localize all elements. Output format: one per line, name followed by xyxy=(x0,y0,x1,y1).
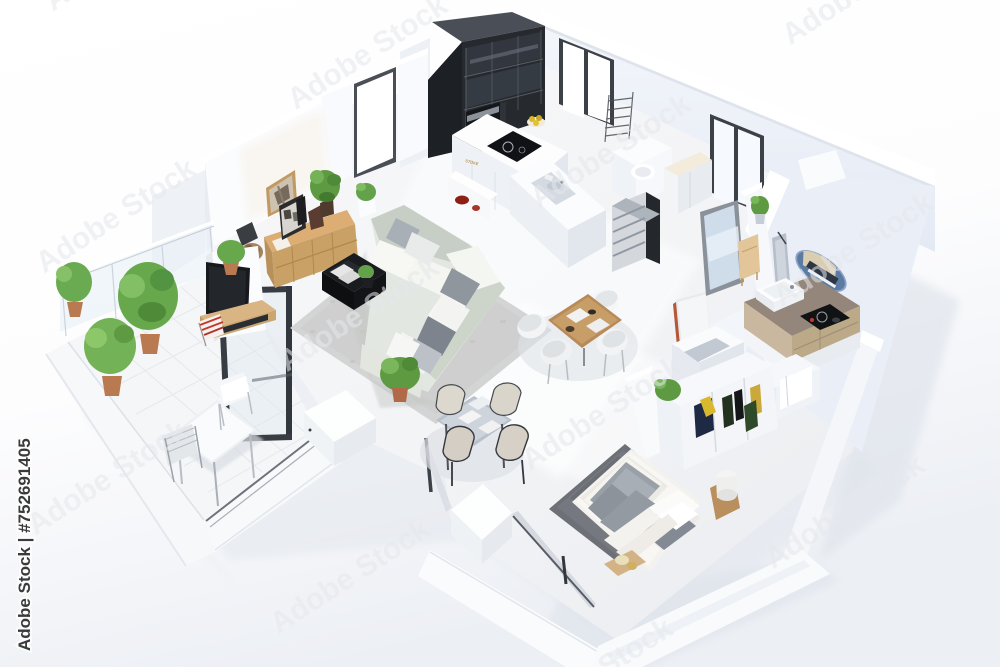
svg-text:Adobe Stock | #752691405: Adobe Stock | #752691405 xyxy=(15,438,34,651)
